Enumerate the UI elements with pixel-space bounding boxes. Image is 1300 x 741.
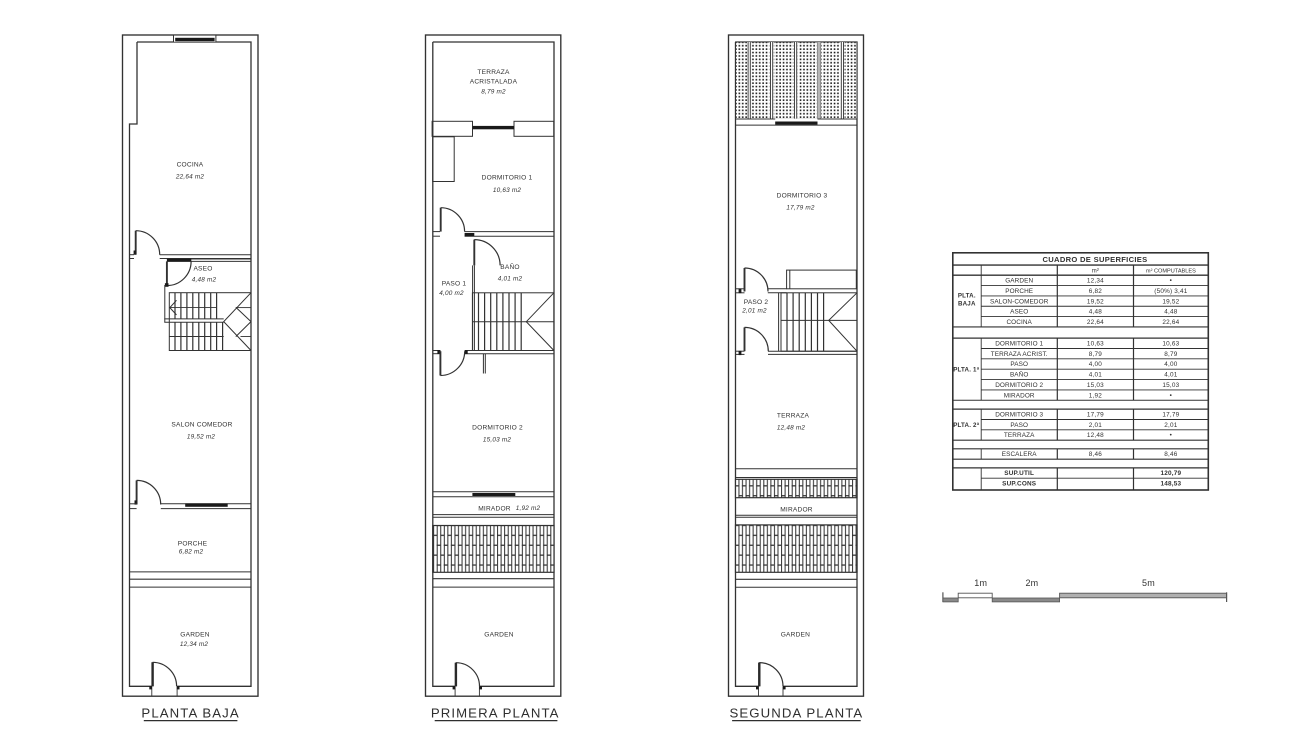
svg-text:m² COMPUTABLES: m² COMPUTABLES — [1146, 269, 1196, 275]
svg-text:MIRADOR: MIRADOR — [478, 505, 511, 512]
svg-text:SALON COMEDOR: SALON COMEDOR — [171, 422, 232, 429]
svg-text:GARDEN: GARDEN — [180, 632, 209, 639]
svg-text:8,79 m2: 8,79 m2 — [481, 89, 506, 96]
svg-text:PASO 2: PASO 2 — [744, 299, 769, 306]
svg-text:TERRAZA: TERRAZA — [1004, 432, 1035, 439]
svg-text:DORMITORIO 2: DORMITORIO 2 — [995, 382, 1043, 389]
svg-text:10,63 m2: 10,63 m2 — [493, 187, 521, 194]
svg-text:ASEO: ASEO — [1010, 309, 1028, 316]
svg-text:BAJA: BAJA — [958, 301, 976, 308]
svg-text:PLTA. 2ª: PLTA. 2ª — [953, 422, 980, 429]
svg-text:TERRAZA ACRIST.: TERRAZA ACRIST. — [991, 351, 1048, 358]
svg-text:4,48: 4,48 — [1089, 309, 1102, 316]
svg-text:PASO: PASO — [1010, 422, 1028, 429]
svg-text:12,48: 12,48 — [1087, 432, 1104, 439]
svg-text:(50%) 3,41: (50%) 3,41 — [1154, 288, 1188, 295]
svg-text:17,79 m2: 17,79 m2 — [786, 205, 814, 212]
svg-text:4,00 m2: 4,00 m2 — [439, 290, 464, 297]
svg-text:1,92 m2: 1,92 m2 — [516, 505, 541, 512]
svg-text:4,01: 4,01 — [1164, 372, 1177, 379]
svg-text:GARDEN: GARDEN — [781, 632, 810, 639]
svg-text:DORMITORIO 1: DORMITORIO 1 — [995, 341, 1043, 348]
svg-text:8,79: 8,79 — [1089, 351, 1102, 358]
svg-text:SUP.CONS: SUP.CONS — [1002, 481, 1037, 488]
svg-text:17,79: 17,79 — [1087, 412, 1104, 419]
svg-text:•: • — [1170, 432, 1172, 439]
svg-text:•: • — [1170, 392, 1172, 399]
svg-text:4,00: 4,00 — [1164, 361, 1177, 368]
svg-text:12,34 m2: 12,34 m2 — [180, 641, 208, 648]
svg-text:4,01 m2: 4,01 m2 — [498, 276, 523, 283]
svg-text:SALON-COMEDOR: SALON-COMEDOR — [990, 298, 1049, 305]
svg-text:4,48 m2: 4,48 m2 — [192, 277, 217, 284]
svg-text:PLTA. 1ª: PLTA. 1ª — [953, 366, 980, 373]
svg-text:DORMITORIO 1: DORMITORIO 1 — [482, 175, 533, 182]
svg-text:8,46: 8,46 — [1089, 451, 1102, 458]
svg-text:6,82: 6,82 — [1089, 288, 1102, 295]
svg-text:PLTA.: PLTA. — [958, 293, 976, 300]
svg-text:PORCHE: PORCHE — [178, 541, 208, 548]
svg-text:8,46: 8,46 — [1164, 451, 1177, 458]
svg-text:15,03: 15,03 — [1162, 382, 1179, 389]
svg-text:19,52: 19,52 — [1087, 298, 1104, 305]
svg-text:4,00: 4,00 — [1089, 361, 1102, 368]
svg-text:2,01 m2: 2,01 m2 — [741, 308, 767, 315]
svg-text:8,79: 8,79 — [1164, 351, 1177, 358]
svg-text:2,01: 2,01 — [1089, 422, 1102, 429]
svg-text:MIRADOR: MIRADOR — [780, 506, 813, 513]
svg-text:COCINA: COCINA — [1006, 319, 1032, 326]
svg-text:1,92: 1,92 — [1089, 392, 1102, 399]
svg-text:19,52: 19,52 — [1162, 298, 1179, 305]
svg-text:148,53: 148,53 — [1161, 481, 1182, 488]
svg-text:TERRAZA: TERRAZA — [477, 69, 510, 76]
svg-text:PLANTA BAJA: PLANTA BAJA — [141, 705, 239, 720]
svg-text:15,03 m2: 15,03 m2 — [483, 437, 511, 444]
svg-text:15,03: 15,03 — [1087, 382, 1104, 389]
svg-text:CUADRO DE SUPERFICIES: CUADRO DE SUPERFICIES — [1042, 255, 1147, 264]
svg-text:MIRADOR: MIRADOR — [1004, 392, 1035, 399]
svg-text:4,48: 4,48 — [1164, 309, 1177, 316]
svg-text:22,64 m2: 22,64 m2 — [175, 174, 204, 181]
svg-text:5m: 5m — [1142, 578, 1155, 588]
svg-text:22,64: 22,64 — [1162, 319, 1179, 326]
svg-text:PASO: PASO — [1010, 361, 1028, 368]
svg-text:DORMITORIO 3: DORMITORIO 3 — [995, 412, 1043, 419]
svg-text:DORMITORIO 3: DORMITORIO 3 — [777, 193, 828, 200]
svg-text:ESCALERA: ESCALERA — [1002, 451, 1038, 458]
svg-text:m²: m² — [1092, 269, 1099, 275]
svg-text:ACRISTALADA: ACRISTALADA — [470, 79, 518, 86]
svg-text:19,52 m2: 19,52 m2 — [187, 434, 215, 441]
svg-text:10,63: 10,63 — [1087, 341, 1104, 348]
svg-text:2m: 2m — [1025, 578, 1038, 588]
svg-text:120,79: 120,79 — [1161, 470, 1182, 477]
svg-text:GARDEN: GARDEN — [1005, 278, 1033, 285]
svg-text:22,64: 22,64 — [1087, 319, 1104, 326]
svg-text:PRIMERA PLANTA: PRIMERA PLANTA — [431, 705, 560, 720]
svg-text:SEGUNDA PLANTA: SEGUNDA PLANTA — [729, 705, 863, 720]
svg-text:PORCHE: PORCHE — [1005, 288, 1033, 295]
svg-text:ASEO: ASEO — [193, 266, 212, 273]
svg-text:•: • — [1170, 278, 1172, 285]
svg-text:BAÑO: BAÑO — [1010, 370, 1029, 379]
svg-text:2,01: 2,01 — [1164, 422, 1177, 429]
svg-text:PASO 1: PASO 1 — [442, 281, 467, 288]
svg-text:DORMITORIO 2: DORMITORIO 2 — [472, 425, 523, 432]
svg-text:GARDEN: GARDEN — [484, 632, 513, 639]
svg-text:COCINA: COCINA — [177, 162, 204, 169]
svg-text:4,01: 4,01 — [1089, 372, 1102, 379]
svg-text:10,63: 10,63 — [1162, 341, 1179, 348]
svg-text:SUP.UTIL: SUP.UTIL — [1004, 470, 1034, 477]
svg-text:BAÑO: BAÑO — [500, 262, 520, 271]
svg-text:17,79: 17,79 — [1162, 412, 1179, 419]
svg-text:12,48 m2: 12,48 m2 — [777, 425, 805, 432]
svg-text:12,34: 12,34 — [1087, 278, 1104, 285]
svg-text:TERRAZA: TERRAZA — [777, 413, 810, 420]
svg-text:1m: 1m — [974, 578, 987, 588]
svg-text:6,82 m2: 6,82 m2 — [179, 549, 204, 556]
